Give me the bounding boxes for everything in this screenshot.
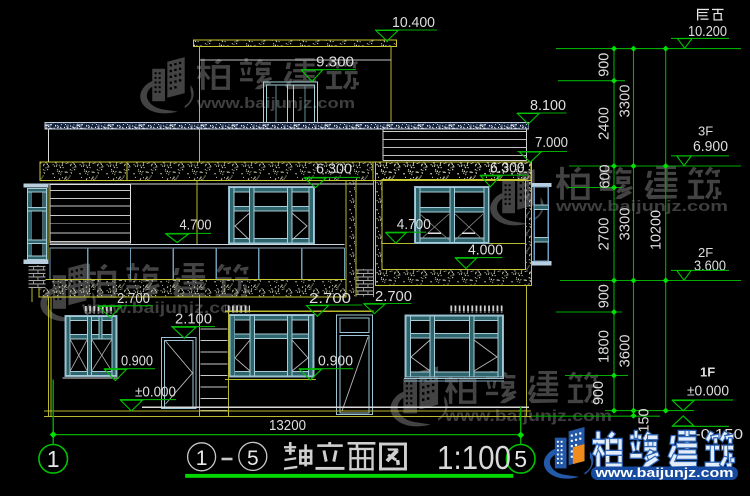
svg-text:6.900: 6.900 [693,139,728,155]
svg-text:www.baijunjz.com: www.baijunjz.com [594,465,733,480]
svg-text:5: 5 [247,447,259,470]
svg-text:4.700: 4.700 [397,217,431,233]
svg-text:150: 150 [637,409,653,433]
svg-text:www.baijunjz.com: www.baijunjz.com [196,95,355,112]
svg-text:10200: 10200 [649,210,665,250]
svg-text:3300: 3300 [618,208,634,241]
svg-text:7.000: 7.000 [535,135,568,151]
svg-text:900: 900 [597,53,613,77]
svg-text:4.700: 4.700 [180,218,212,234]
svg-text:3300: 3300 [618,85,634,118]
svg-text:8.100: 8.100 [530,98,566,114]
svg-text:13200: 13200 [269,418,306,434]
svg-text:1:100: 1:100 [437,439,511,476]
svg-text:5: 5 [514,446,527,472]
svg-text:1: 1 [196,447,208,470]
svg-text:2.100: 2.100 [175,312,212,328]
svg-text:2.700: 2.700 [375,289,412,305]
svg-text:±0.000: ±0.000 [135,385,176,401]
svg-text:10.400: 10.400 [392,15,435,31]
svg-text:1800: 1800 [597,330,613,363]
svg-text:0.900: 0.900 [121,354,153,370]
svg-text:1: 1 [47,446,60,472]
svg-text:2700: 2700 [597,218,613,251]
svg-text:900: 900 [597,284,613,308]
svg-text:0.900: 0.900 [318,354,353,370]
svg-text:1F: 1F [700,365,715,380]
svg-text:600: 600 [598,165,614,189]
svg-text:3.600: 3.600 [694,259,726,275]
svg-text:900: 900 [591,381,607,405]
svg-text:www.baijunjz.com: www.baijunjz.com [555,199,728,215]
svg-text:6.300: 6.300 [490,161,525,177]
svg-text:2.700: 2.700 [117,291,150,307]
svg-text:10.200: 10.200 [688,24,727,40]
svg-text:3F: 3F [698,124,713,139]
svg-text:9.300: 9.300 [316,55,354,71]
svg-text:±0.000: ±0.000 [687,384,729,400]
svg-text:6.300: 6.300 [316,162,352,178]
svg-text:2400: 2400 [597,107,613,140]
svg-text:4.000: 4.000 [468,243,503,259]
svg-text:3600: 3600 [618,335,634,368]
